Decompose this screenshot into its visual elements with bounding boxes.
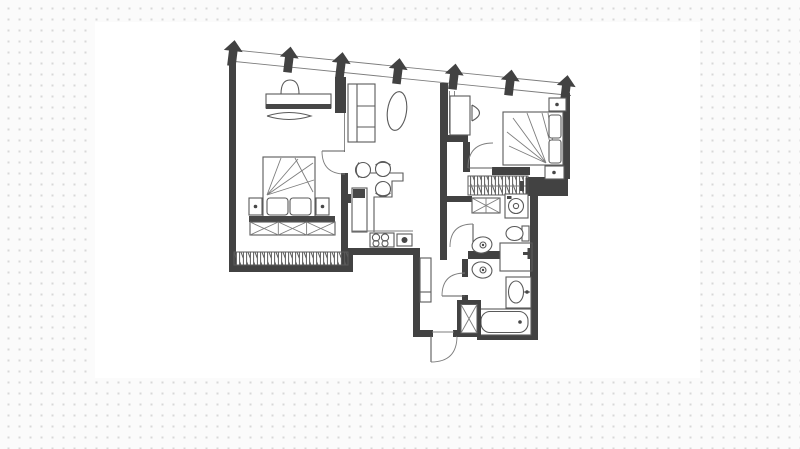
wall-kitchen-tick (346, 194, 351, 203)
wall-left-outer (229, 58, 236, 272)
dining-chair-3 (376, 182, 391, 197)
toilet-icon (506, 226, 529, 241)
pillow-icon (549, 140, 561, 163)
console-cabinet (420, 258, 431, 302)
pillow-icon (267, 198, 288, 215)
hanging-rail-wardrobe (234, 252, 348, 265)
lamp-dot (254, 205, 258, 209)
lamp-dot (321, 205, 325, 209)
wall-block-top-right (528, 177, 568, 196)
wall-right-step (413, 248, 420, 337)
bathtub-icon (478, 309, 531, 335)
wall-hall-bath-upper (462, 259, 468, 277)
lamp-dot (555, 103, 559, 107)
floor-plan-drawing (0, 0, 800, 449)
wall-kitchen-bottom (345, 248, 420, 255)
wall-entry-left (413, 330, 433, 337)
wall-bedroom-right-bottom (492, 167, 530, 175)
wash-basin-counter (506, 277, 531, 308)
shelf-sofa-icon (348, 84, 375, 142)
pillow-icon (549, 115, 561, 138)
blanket-chest-x (250, 222, 335, 235)
closet-rail (468, 176, 529, 195)
wall-bedroom-right-horiz (440, 135, 468, 142)
dining-chair-2 (376, 162, 391, 177)
wall-bath-top (447, 196, 472, 202)
pillow-icon (290, 198, 311, 215)
floor-plan-page (0, 0, 800, 449)
headboard (249, 216, 335, 222)
x-cabinet (472, 198, 500, 213)
wall-pier-bedroom-left (335, 77, 346, 113)
dressing-table-icon (450, 96, 470, 135)
desk-edge (266, 104, 331, 109)
wall-bath-left (440, 142, 447, 260)
wall-bedroom-right-upper (440, 83, 448, 137)
wall-bottom-bedroom-left (229, 265, 353, 272)
duct-shaft-x (457, 300, 481, 337)
lamp-dot (552, 171, 556, 175)
washing-machine-icon (505, 194, 528, 218)
dining-chair-1 (356, 163, 371, 178)
